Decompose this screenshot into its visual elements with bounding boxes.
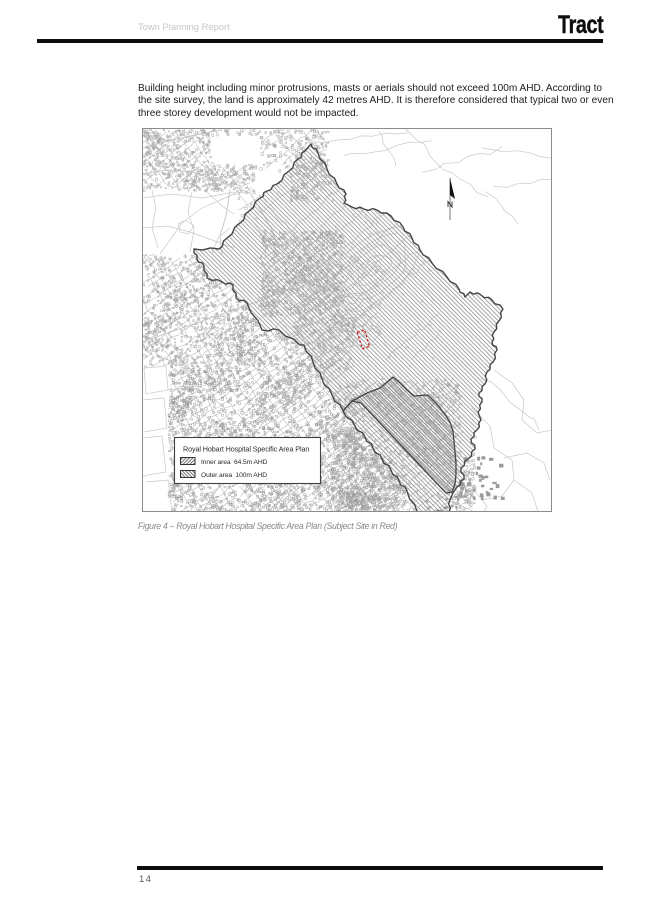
svg-text:Inner area 64.5m AHD: Inner area 64.5m AHD — [201, 459, 268, 466]
svg-text:Royal Hobart Hospital Specific: Royal Hobart Hospital Specific Area Plan — [183, 444, 309, 453]
svg-text:Outer area 100m AHD: Outer area 100m AHD — [201, 472, 267, 479]
